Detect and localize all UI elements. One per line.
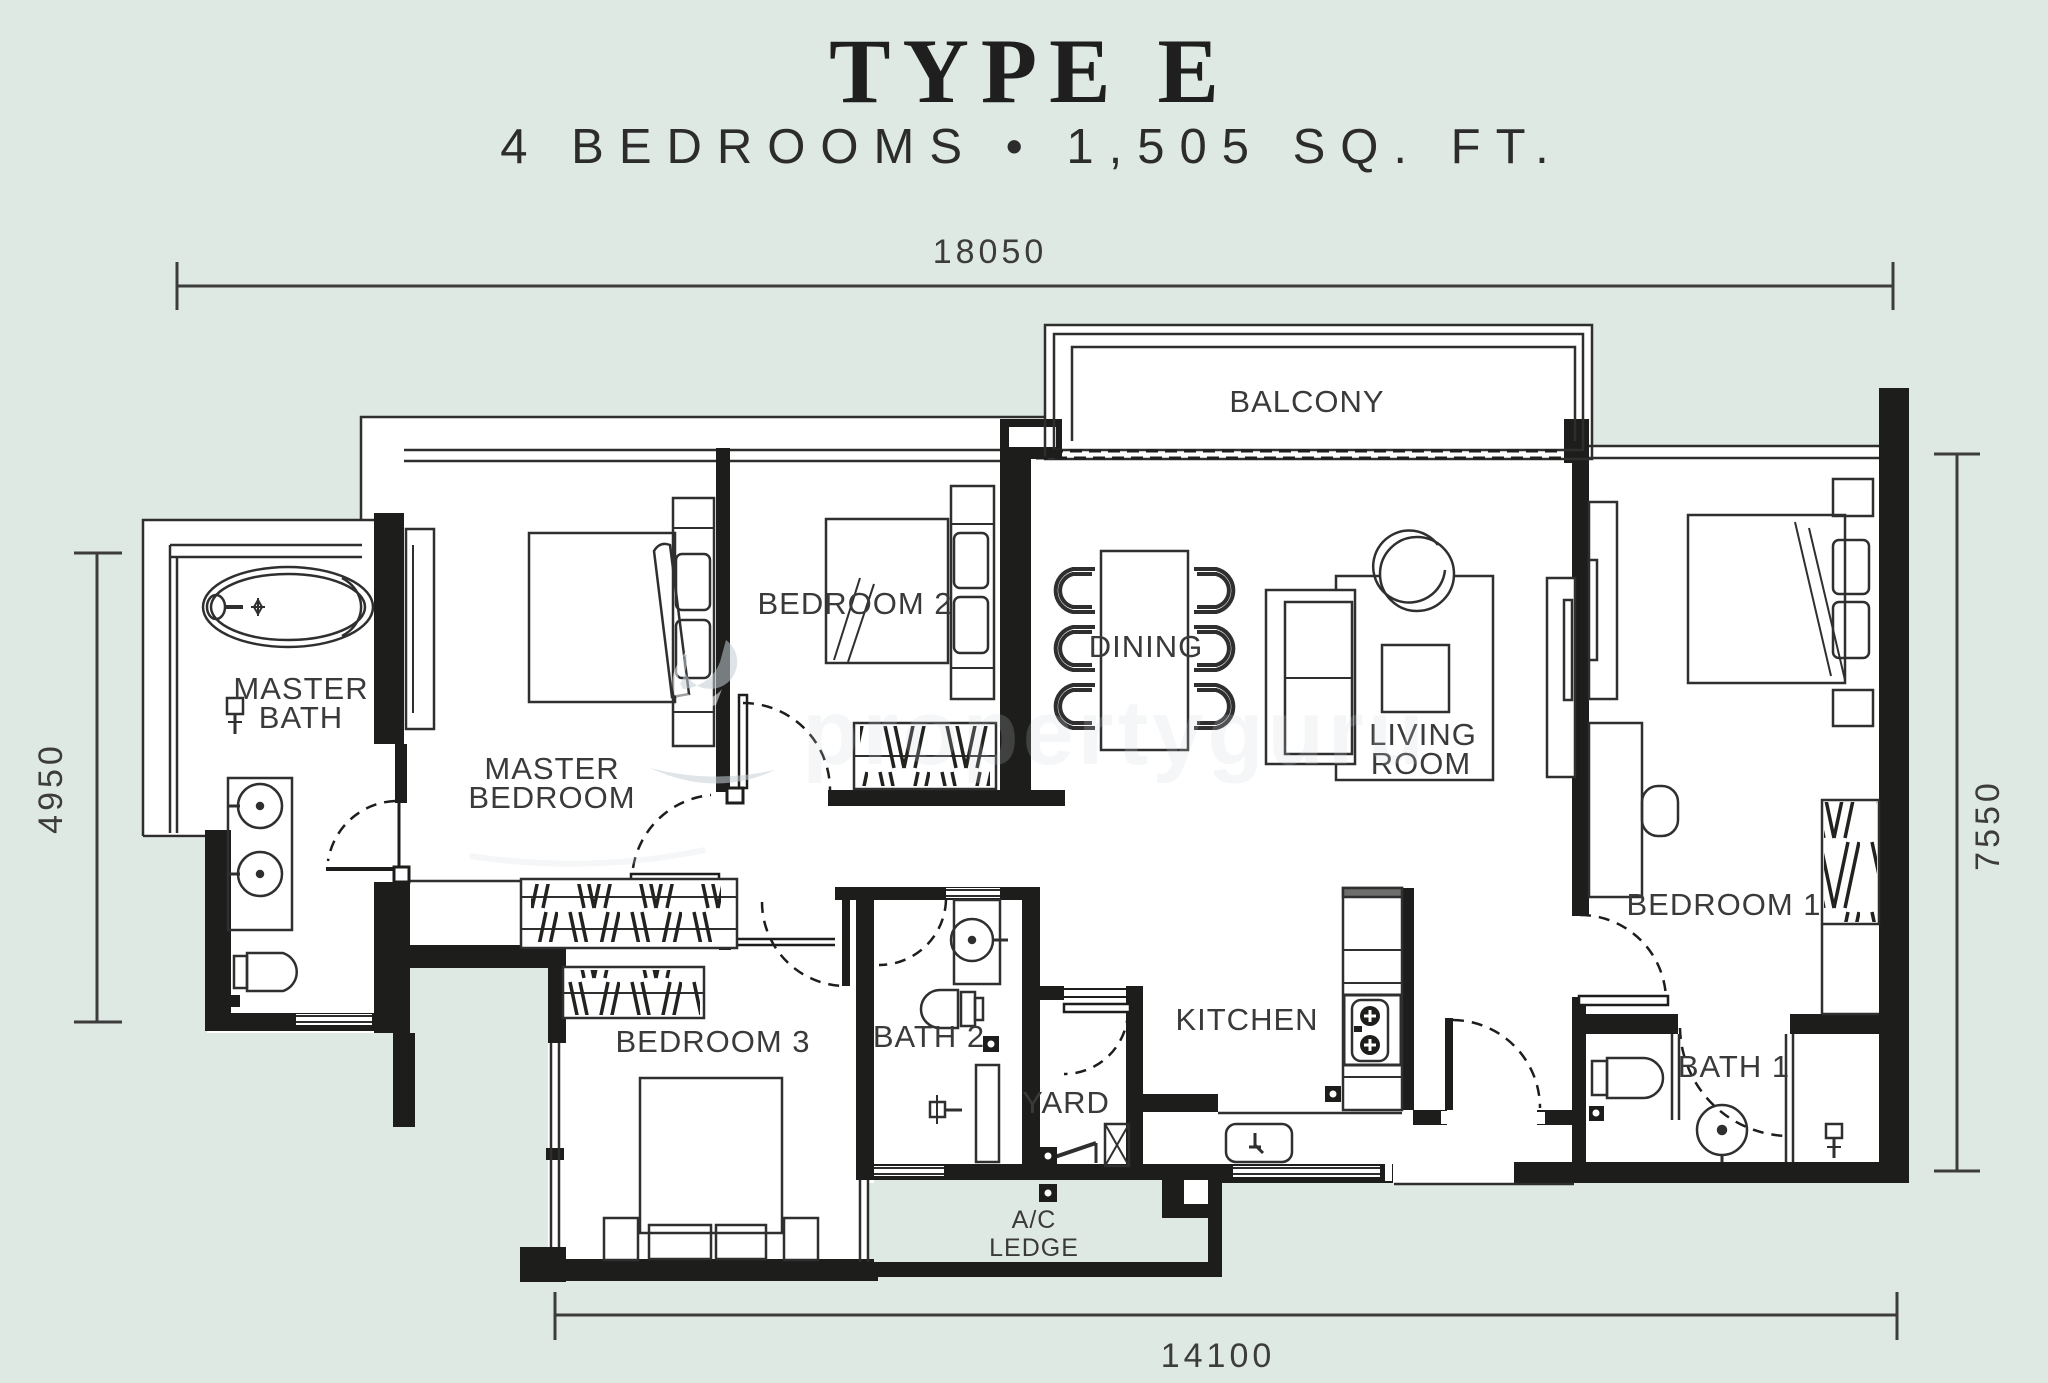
svg-text:BEDROOM: BEDROOM	[468, 780, 635, 815]
svg-text:BATH 2: BATH 2	[873, 1019, 985, 1054]
svg-text:DINING: DINING	[1089, 629, 1204, 664]
svg-text:propertyguru: propertyguru	[802, 682, 1428, 784]
svg-text:BALCONY: BALCONY	[1229, 384, 1384, 419]
svg-text:BEDROOM 3: BEDROOM 3	[615, 1024, 810, 1059]
svg-text:A/C: A/C	[1012, 1206, 1057, 1234]
svg-text:4 BEDROOMS • 1,505 SQ. FT.: 4 BEDROOMS • 1,505 SQ. FT.	[500, 120, 1563, 174]
svg-text:LEDGE: LEDGE	[989, 1234, 1079, 1262]
svg-text:18050: 18050	[933, 233, 1048, 271]
svg-text:BEDROOM 2: BEDROOM 2	[757, 586, 952, 621]
svg-text:14100: 14100	[1161, 1337, 1276, 1375]
svg-text:7550: 7550	[1969, 779, 2007, 871]
svg-text:BATH 1: BATH 1	[1678, 1049, 1790, 1084]
svg-text:YARD: YARD	[1022, 1085, 1110, 1120]
svg-text:TYPE E: TYPE E	[829, 20, 1231, 122]
svg-text:4950: 4950	[32, 742, 70, 834]
svg-text:BEDROOM 1: BEDROOM 1	[1626, 887, 1821, 922]
svg-text:KITCHEN: KITCHEN	[1175, 1002, 1318, 1037]
svg-text:BATH: BATH	[259, 700, 343, 735]
